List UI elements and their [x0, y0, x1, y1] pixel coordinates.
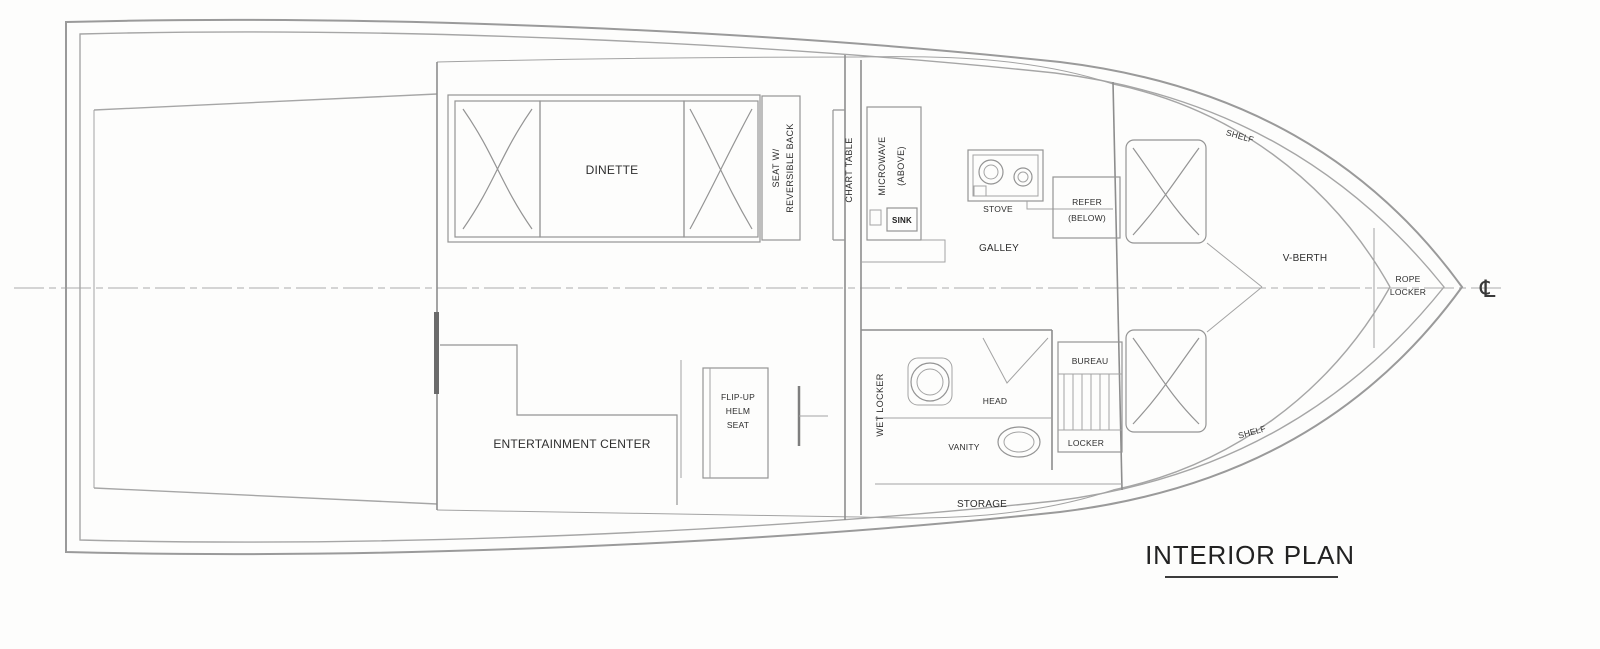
forward-bulkhead [1113, 82, 1122, 490]
drawing-title: INTERIOR PLAN [1145, 540, 1355, 570]
vberth-foot-top [1207, 243, 1262, 287]
microwave-label-1: MICROWAVE [877, 136, 887, 195]
stove-label: STOVE [983, 204, 1013, 214]
storage-label: STORAGE [957, 499, 1007, 510]
helm-area: ENTERTAINMENT CENTER FLIP-UP HELM SEAT [440, 345, 828, 505]
saloon: DINETTE SEAT W/ REVERSIBLE BACK CHART TA… [448, 95, 854, 242]
head-label: HEAD [983, 396, 1007, 406]
galley: MICROWAVE (ABOVE) SINK STOVE GALLEY REFE… [861, 107, 1120, 262]
bureau-label: BUREAU [1072, 356, 1109, 366]
head-door-swing [983, 338, 1048, 383]
centerline-symbol: ℄ [1479, 276, 1496, 303]
seat-back-label-1: SEAT W/ [771, 148, 781, 187]
chart-table-label: CHART TABLE [844, 137, 854, 202]
bureau-locker: BUREAU LOCKER [1058, 342, 1122, 452]
helm-seat-label-2: HELM [726, 406, 750, 416]
vanity-label: VANITY [948, 442, 979, 452]
forward-cabin: SHELF SHELF V-BERTH ROPE LOCKER [1126, 127, 1426, 440]
stove-burner-left-inner [984, 165, 998, 179]
locker-label: LOCKER [1068, 438, 1104, 448]
deck-line-top [94, 94, 437, 110]
stove-burner-left [979, 160, 1003, 184]
refer-label-1: REFER [1072, 197, 1102, 207]
deck-line-bottom [94, 488, 437, 504]
entertainment-center-label: ENTERTAINMENT CENTER [493, 437, 650, 451]
counter-edge-aft [861, 240, 945, 262]
stove-burner-right [1014, 168, 1032, 186]
boat-plan-canvas: DINETTE SEAT W/ REVERSIBLE BACK CHART TA… [0, 0, 1600, 649]
sink-drainer [870, 210, 881, 225]
interior-plan-drawing: DINETTE SEAT W/ REVERSIBLE BACK CHART TA… [0, 0, 1600, 649]
seat-back-label-2: REVERSIBLE BACK [785, 123, 795, 213]
hull-outer [66, 20, 1462, 554]
galley-label: GALLEY [979, 243, 1019, 254]
toilet-bowl-inner [917, 369, 943, 395]
title-block: INTERIOR PLAN [1145, 540, 1355, 577]
wet-locker-label: WET LOCKER [875, 373, 885, 436]
entertainment-console-outline [440, 345, 677, 505]
cushion-x-left-2 [463, 109, 532, 229]
rope-locker-label-1: ROPE [1396, 274, 1421, 284]
microwave-label-2: (ABOVE) [896, 146, 906, 186]
vanity-sink-inner [1004, 432, 1034, 452]
door-jamb [434, 312, 439, 394]
helm-seat-label-1: FLIP-UP [721, 392, 755, 402]
vberth-foot-bottom [1207, 287, 1262, 332]
v-berth-label: V-BERTH [1283, 253, 1328, 264]
sidedeck-bottom [437, 490, 1113, 518]
sidedeck-top [437, 57, 1113, 84]
dinette-label: DINETTE [586, 163, 639, 177]
stove-control-panel [974, 186, 986, 196]
stove-burner-right-inner [1018, 172, 1028, 182]
refer-outline [1053, 177, 1120, 238]
helm-seat-label-3: SEAT [727, 420, 749, 430]
refer-label-2: (BELOW) [1068, 213, 1106, 223]
toilet-base [908, 358, 952, 405]
sink-label: SINK [892, 216, 912, 225]
locker-louvers [1058, 374, 1122, 430]
rope-locker-label-2: LOCKER [1390, 287, 1426, 297]
hull [66, 20, 1462, 554]
